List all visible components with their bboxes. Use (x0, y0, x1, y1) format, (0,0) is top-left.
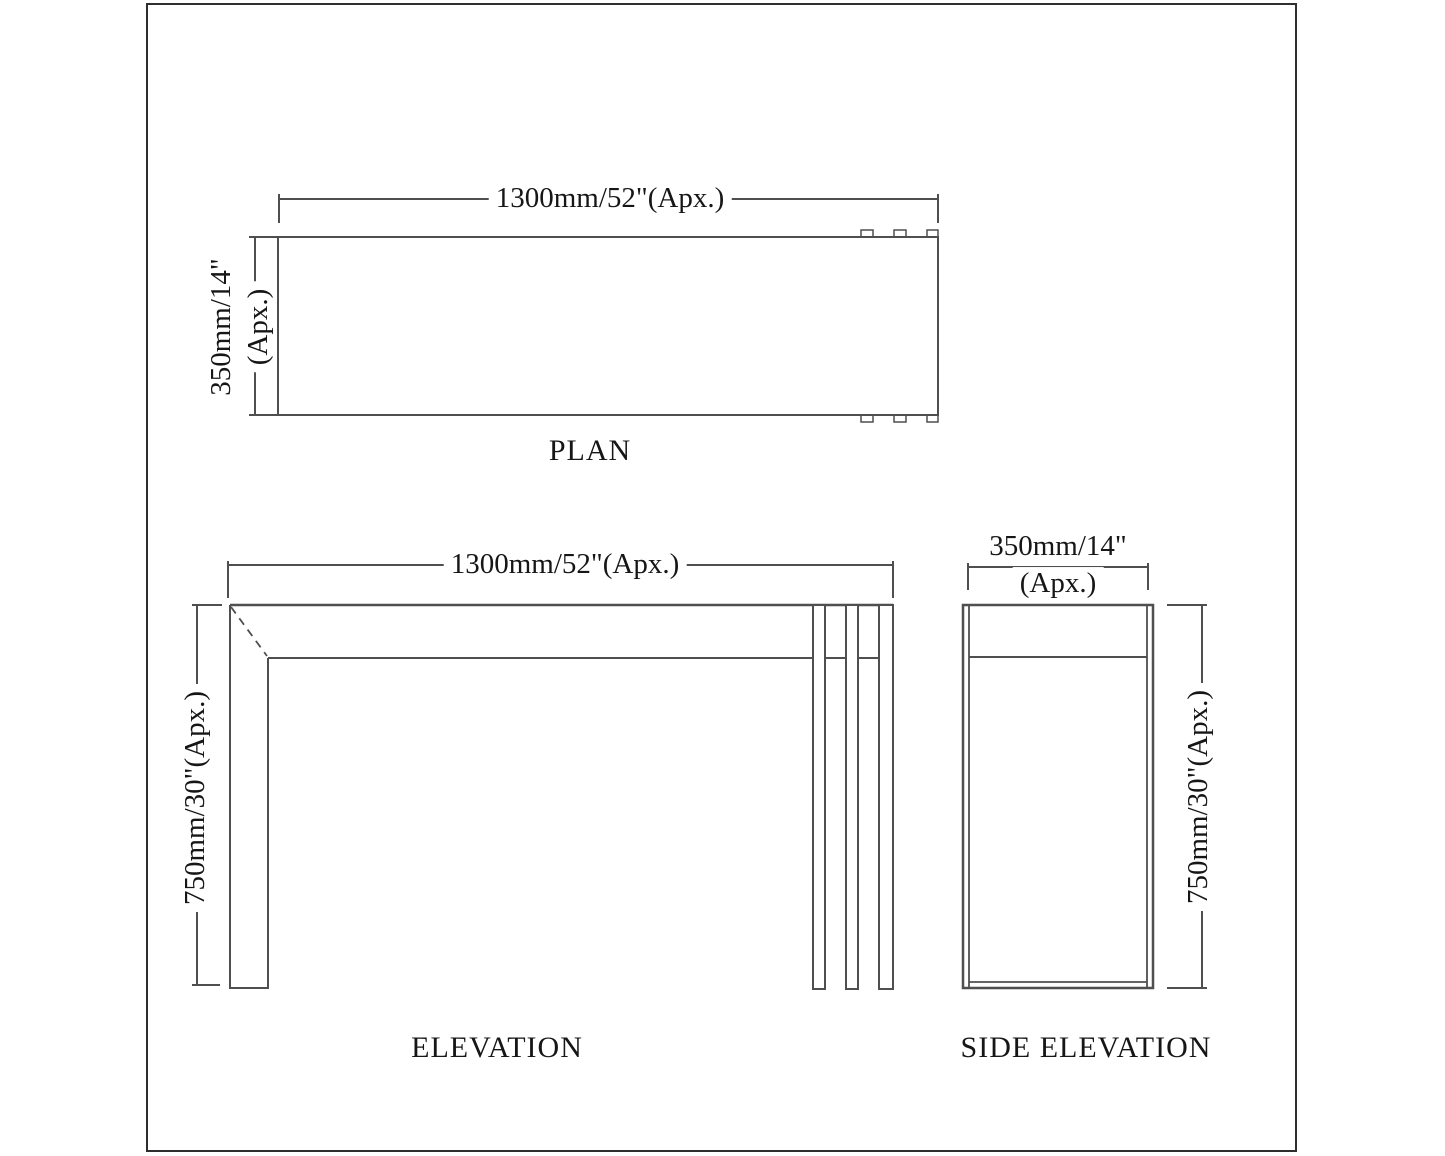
plan-slat-mark-top-3 (927, 230, 938, 237)
elevation-left-leg (230, 605, 268, 988)
side-width-dimension-text-line2: (Apx.) (1013, 567, 1104, 601)
plan-slat-mark-bottom-3 (927, 415, 938, 422)
elevation-width-dimension-text: 1300mm/52"(Apx.) (444, 548, 687, 582)
elevation-slat-1 (813, 605, 825, 989)
plan-slat-mark-top-1 (861, 230, 873, 237)
plan-depth-dimension-text-line1: 350mm/14" (205, 251, 239, 403)
side-elevation-view-label: SIDE ELEVATION (961, 1031, 1212, 1065)
side-width-dimension-text-line1: 350mm/14" (982, 530, 1134, 564)
elevation-height-dimension-text: 750mm/30"(Apx.) (179, 684, 213, 912)
plan-view-label: PLAN (549, 434, 631, 468)
side-outline (963, 605, 1153, 988)
side-height-dimension-text: 750mm/30"(Apx.) (1182, 683, 1216, 911)
plan-tabletop-outline (278, 237, 938, 415)
drawing-sheet: 1300mm/52"(Apx.) 350mm/14" (Apx.) PLAN 1… (0, 0, 1445, 1156)
plan-view (249, 194, 938, 422)
elevation-view (192, 561, 893, 989)
plan-slat-mark-bottom-1 (861, 415, 873, 422)
elevation-slat-2 (846, 605, 858, 989)
elevation-slat-3 (879, 605, 893, 989)
plan-slat-mark-bottom-2 (894, 415, 906, 422)
side-elevation-view (963, 563, 1207, 988)
plan-slat-mark-top-2 (894, 230, 906, 237)
plan-depth-dimension-text-line2: (Apx.) (242, 282, 276, 373)
elevation-miter-dashed-line (231, 607, 267, 656)
plan-width-dimension-text: 1300mm/52"(Apx.) (489, 182, 732, 216)
elevation-view-label: ELEVATION (411, 1031, 583, 1065)
linework-layer (0, 0, 1445, 1156)
